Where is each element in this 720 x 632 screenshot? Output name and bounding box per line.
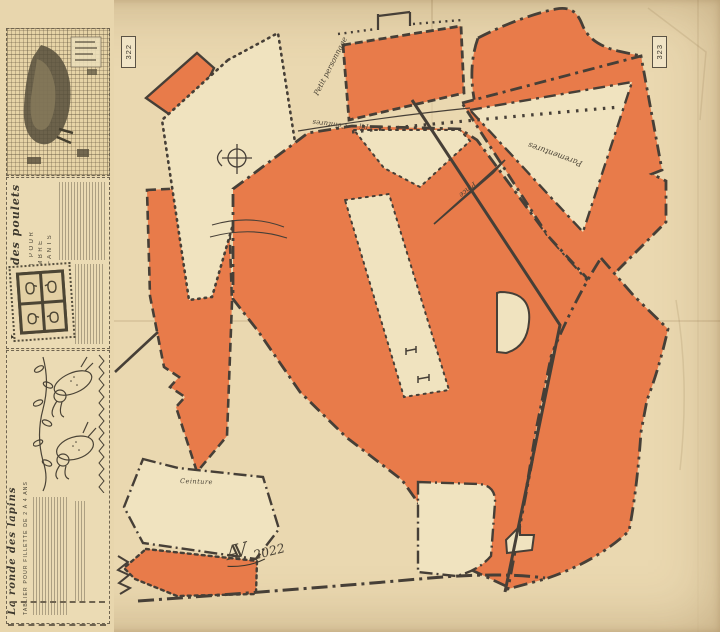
pattern-sheet: Petit personnage Ceintures Pli Pince Par…: [0, 0, 720, 632]
rabbit-article-panel: La ronde des lapins TABLIER POUR FILLETT…: [6, 350, 110, 624]
article-subtitle: TABLIER POUR FILLETTE DE 2 À 4 ANS: [23, 499, 29, 615]
page-tag-right: 323: [652, 36, 667, 68]
label-pli: Pli: [359, 122, 370, 131]
article-body-text: [59, 182, 105, 260]
chart-legend: [71, 37, 101, 67]
zigzag-edging: [99, 355, 104, 493]
rabbit-illustration: [33, 353, 107, 493]
label-petit-personnage: Petit personnage: [311, 35, 349, 98]
article-body-text: [75, 501, 85, 601]
pattern-piece: [418, 482, 495, 576]
article-body-text: [33, 497, 69, 615]
bird-cross-stitch-chart: [6, 28, 110, 176]
paper-crease: [648, 8, 706, 470]
chicken-article-panel: La parade des poulets COUSSIN POUR LA CH…: [6, 177, 110, 349]
page-tag-left: 322: [121, 36, 136, 68]
newsprint-sidebar: La parade des poulets COUSSIN POUR LA CH…: [0, 0, 114, 632]
notch-marks: [378, 12, 410, 30]
divider: [11, 601, 105, 603]
zigzag-edge: [118, 556, 130, 594]
cut-line: [115, 332, 158, 372]
hen-motif-icon: [7, 29, 109, 175]
article-body-text: [75, 264, 105, 344]
divider: [8, 624, 106, 626]
pattern-piece: [343, 26, 464, 120]
pattern-piece-ceinture: [124, 459, 279, 559]
cushion-illustration: [8, 262, 75, 342]
article-title: La ronde des lapins: [7, 497, 18, 615]
label-ceinture: Ceinture: [180, 477, 213, 486]
